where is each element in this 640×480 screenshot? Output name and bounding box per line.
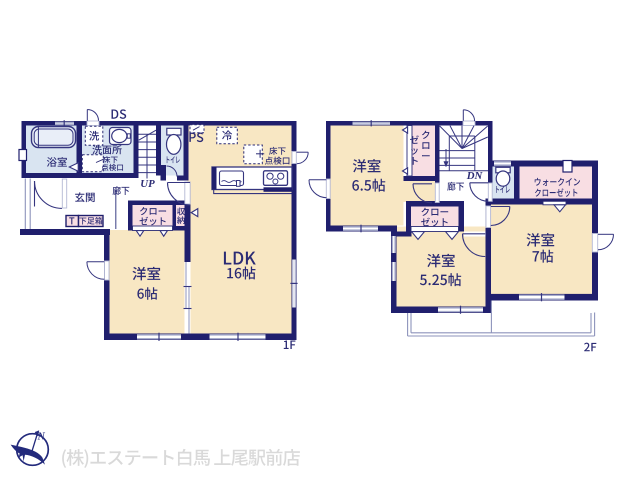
svg-text:DN: DN: [466, 170, 484, 182]
svg-text:N: N: [37, 431, 46, 442]
svg-text:UP: UP: [140, 178, 155, 190]
